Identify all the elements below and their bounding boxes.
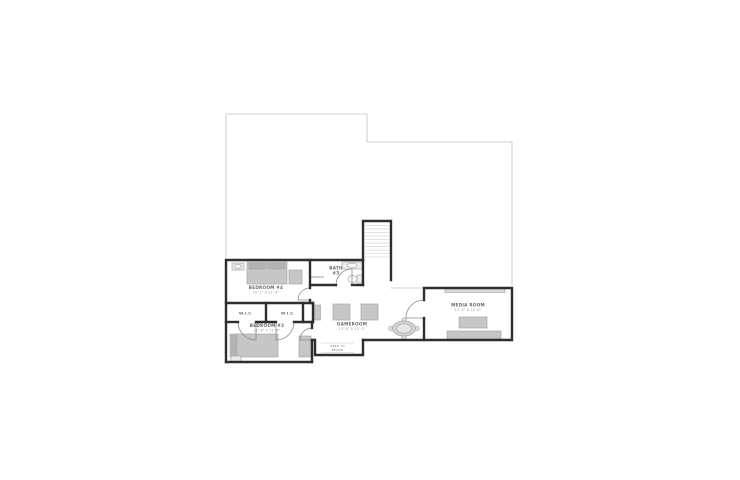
- media-room-dims: 17'-4" X 12'-0": [455, 308, 482, 312]
- media-door-arc: [406, 300, 424, 318]
- sink-icon: [347, 263, 357, 268]
- bedroom3-dims: 11'-4" X 11'-6": [254, 329, 281, 333]
- pillow-icon: [249, 264, 266, 270]
- media-room-label: MEDIA ROOM: [451, 303, 485, 308]
- console-icon: [315, 305, 321, 320]
- media-screen-icon: [445, 289, 505, 293]
- pillow-icon: [268, 264, 285, 270]
- stair-treads: [365, 226, 390, 258]
- game-table-top-icon: [397, 324, 412, 333]
- floorplan-image: BEDROOM #4 10'-2" X 11'-4" BATH #3 W.I.C…: [0, 0, 740, 480]
- chair-icon: [361, 304, 378, 320]
- toilet-tank-icon: [357, 275, 362, 283]
- toilet-icon: [348, 276, 357, 283]
- open-below-label-line2: BELOW: [332, 348, 344, 352]
- dresser-icon: [299, 336, 311, 357]
- bedroom4-label: BEDROOM #4: [249, 285, 283, 290]
- sofa-icon: [447, 331, 501, 339]
- nightstand-icon: [231, 356, 241, 362]
- pillow-icon: [232, 336, 238, 346]
- coffee-table-icon: [459, 317, 487, 328]
- gameroom-dims: 13'-0" X 13'-1": [339, 327, 366, 331]
- gameroom-label: GAMEROOM: [337, 322, 367, 327]
- wic-right-label: W.I.C.: [281, 311, 295, 316]
- bath3-number: #3: [333, 271, 340, 276]
- chair-icon: [333, 304, 350, 320]
- bedroom3-label: BEDROOM #3: [250, 323, 284, 328]
- wic-left-label: W.I.C.: [239, 311, 253, 316]
- pillow-icon: [232, 347, 238, 357]
- dresser-icon: [289, 270, 302, 284]
- bedroom4-dims: 10'-2" X 11'-4": [253, 291, 280, 295]
- bedroom4-door-arc: [298, 288, 310, 300]
- floorplan-svg: BEDROOM #4 10'-2" X 11'-4" BATH #3 W.I.C…: [0, 0, 740, 480]
- lamp-icon: [235, 264, 242, 268]
